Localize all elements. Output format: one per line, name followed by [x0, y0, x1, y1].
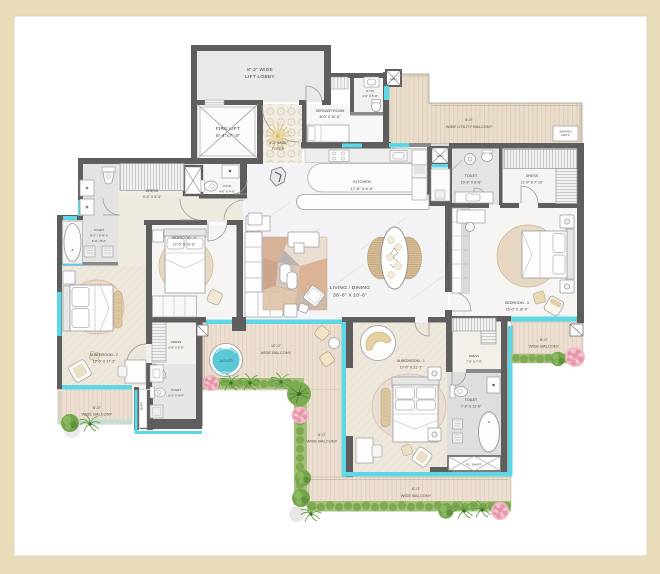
svg-text:WIDE UTILITY BALCONY: WIDE UTILITY BALCONY	[446, 124, 493, 129]
svg-text:DRESS: DRESS	[469, 354, 479, 358]
svg-text:WIDE BALCONY: WIDE BALCONY	[261, 350, 292, 355]
svg-text:10'-3" X 6'-6": 10'-3" X 6'-6"	[461, 181, 482, 185]
svg-text:WIDE BALCONY: WIDE BALCONY	[82, 412, 113, 417]
svg-text:6'-0": 6'-0"	[540, 337, 549, 342]
svg-text:17'-6" X 6'-6": 17'-6" X 6'-6"	[350, 186, 374, 191]
svg-text:6'-0": 6'-0"	[318, 432, 327, 437]
svg-text:16'-0" X 10'-0": 16'-0" X 10'-0"	[506, 308, 529, 312]
svg-text:DRESS: DRESS	[171, 340, 181, 344]
svg-text:DISH W: DISH W	[561, 134, 570, 137]
svg-text:8'-0" X 10'-0": 8'-0" X 10'-0"	[320, 115, 341, 119]
svg-text:DUCT: DUCT	[436, 154, 444, 158]
svg-text:TOILET: TOILET	[465, 398, 478, 402]
svg-text:TOILET: TOILET	[94, 228, 105, 232]
svg-text:8'-3" WIDE: 8'-3" WIDE	[247, 67, 273, 73]
svg-text:PL. SHAFT: PL. SHAFT	[466, 463, 481, 467]
svg-text:7'-9" X 7'-9": 7'-9" X 7'-9"	[466, 360, 482, 364]
svg-text:LIVING / DINING: LIVING / DINING	[330, 285, 370, 291]
svg-text:BEDROOM - 4: BEDROOM - 4	[172, 236, 196, 240]
svg-text:SHAFT: SHAFT	[140, 401, 144, 410]
svg-text:SERVANT ROOM: SERVANT ROOM	[316, 109, 345, 113]
svg-text:4'-0" X 4'-6": 4'-0" X 4'-6"	[219, 190, 235, 194]
svg-text:12'-6" X 17'-2": 12'-6" X 17'-2"	[93, 360, 116, 364]
svg-text:WIDE BALCONY: WIDE BALCONY	[529, 344, 560, 349]
svg-text:DRESS: DRESS	[526, 174, 539, 178]
svg-text:FIRE LIFT: FIRE LIFT	[216, 126, 240, 132]
svg-text:CROCKERY UNIT: CROCKERY UNIT	[446, 240, 450, 265]
svg-text:10'-0": 10'-0"	[271, 343, 282, 348]
svg-text:6'-0" / 8'-2": 6'-0" / 8'-2"	[92, 239, 106, 243]
svg-text:KITCHEN: KITCHEN	[353, 179, 371, 184]
svg-text:WIDE BALCONY: WIDE BALCONY	[307, 439, 338, 444]
svg-text:6'-8" X 5'-9": 6'-8" X 5'-9"	[168, 346, 184, 350]
svg-text:DRESS: DRESS	[146, 189, 159, 193]
svg-text:7'-9" X 11'-6": 7'-9" X 11'-6"	[461, 405, 482, 409]
svg-text:6'-0": 6'-0"	[93, 405, 102, 410]
svg-text:FOYER: FOYER	[272, 147, 285, 151]
svg-text:"5'-2" WIDE": "5'-2" WIDE"	[268, 141, 289, 145]
svg-text:TOILET: TOILET	[171, 388, 182, 392]
svg-text:6'-0": 6'-0"	[412, 486, 421, 491]
svg-text:WIDE BALCONY: WIDE BALCONY	[401, 493, 432, 498]
svg-text:JACUZZI: JACUZZI	[219, 359, 233, 363]
svg-text:M.BEDROOM - 2: M.BEDROOM - 2	[90, 353, 118, 357]
svg-text:BEDROOM - 3: BEDROOM - 3	[505, 301, 529, 305]
svg-text:8'-4"x7'-3": 8'-4"x7'-3"	[216, 133, 240, 139]
svg-text:TOILET: TOILET	[465, 174, 478, 178]
svg-text:M.BEDROOM - 1: M.BEDROOM - 1	[397, 359, 425, 363]
svg-text:4'-0" X 5'-0": 4'-0" X 5'-0"	[362, 94, 378, 98]
svg-text:17'-0" X 21'-7": 17'-0" X 21'-7"	[400, 366, 423, 370]
svg-text:9'-3" X 9'-4": 9'-3" X 9'-4"	[143, 195, 162, 199]
svg-text:6'-2" X 9'-4": 6'-2" X 9'-4"	[168, 394, 184, 398]
svg-text:38'-8" X 10'-6": 38'-8" X 10'-6"	[333, 293, 367, 299]
svg-text:S.TOI: S.TOI	[366, 89, 374, 93]
svg-text:LIFT LOBBY: LIFT LOBBY	[245, 74, 275, 80]
svg-text:12'-6" X 13'-6": 12'-6" X 13'-6"	[173, 243, 196, 247]
svg-text:6'-0": 6'-0"	[465, 117, 474, 122]
svg-text:DUCT: DUCT	[390, 78, 397, 81]
svg-text:P.D.R: P.D.R	[223, 184, 231, 188]
svg-text:8'-2" / 5'-4" X: 8'-2" / 5'-4" X	[90, 234, 107, 238]
svg-text:11'-0" X 7'-10": 11'-0" X 7'-10"	[521, 181, 544, 185]
